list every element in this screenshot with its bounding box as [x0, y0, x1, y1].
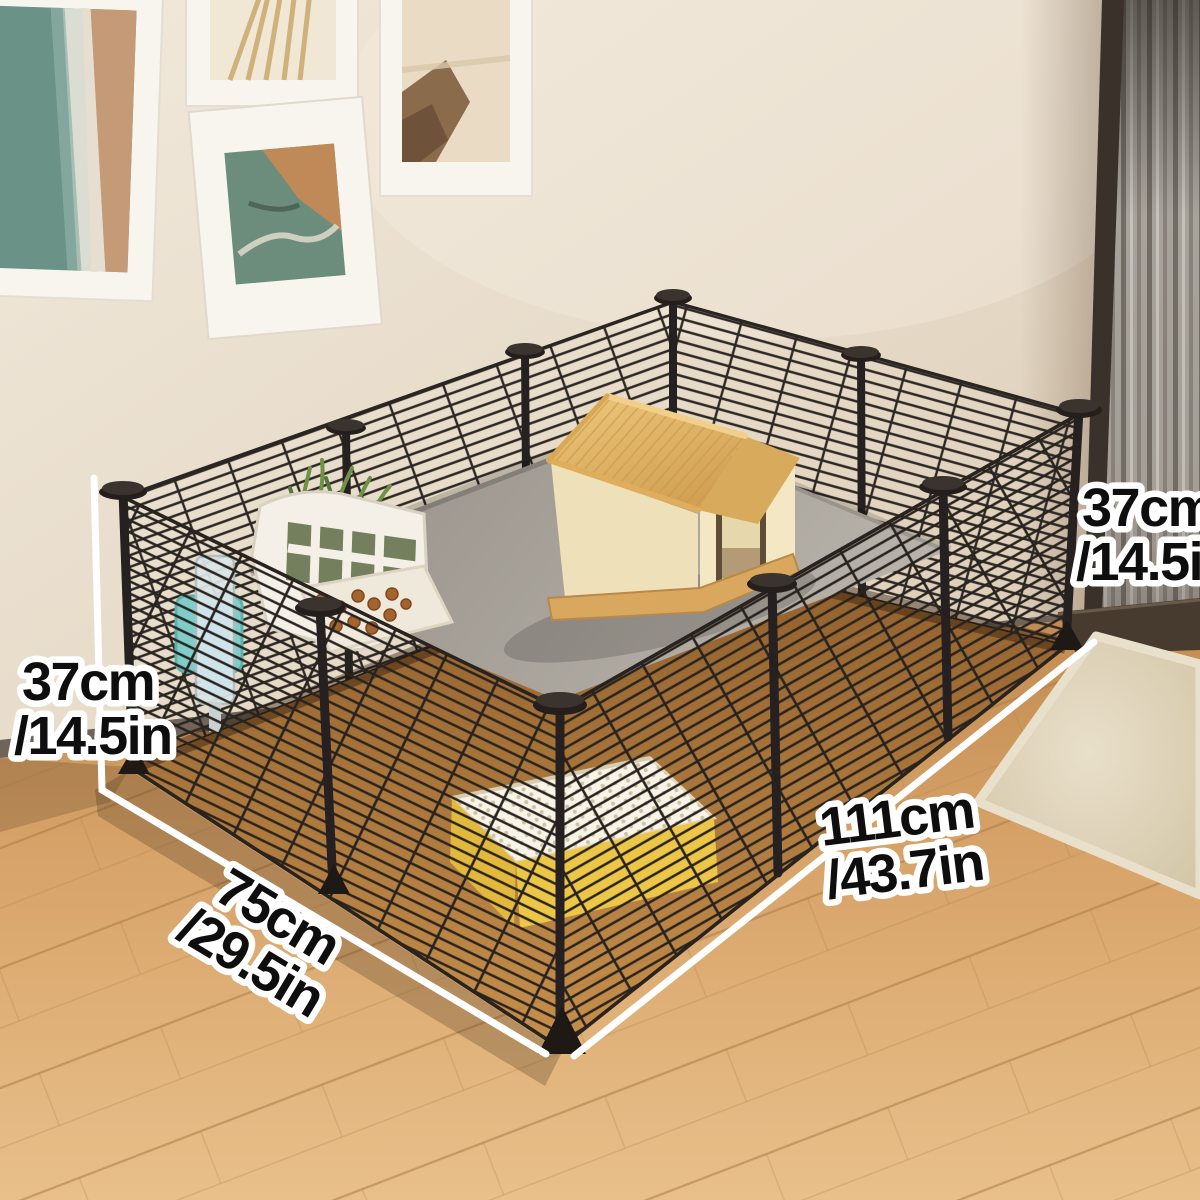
- dimension-label-right-height: 37cm /14.5in: [1076, 478, 1200, 592]
- scene-canvas: 37cm /14.5in 37cm /14.5in 75cm /29.5in 1…: [0, 0, 1200, 1200]
- dimension-label-left-height: 37cm /14.5in: [14, 652, 172, 766]
- picture-frame-abstract-coast: [189, 97, 382, 339]
- dimension-label-side-length: 111cm /43.7in: [816, 779, 986, 910]
- right-height-in: /14.5in: [1076, 532, 1200, 592]
- picture-frame-beach-rocks: [380, 0, 532, 196]
- pet-playpen-product-photo: 37cm /14.5in 37cm /14.5in 75cm /29.5in 1…: [0, 0, 1200, 1200]
- right-height-cm: 37cm: [1082, 478, 1200, 538]
- left-height-in: /14.5in: [14, 706, 172, 766]
- picture-frame-sea: [0, 0, 163, 301]
- left-height-cm: 37cm: [22, 652, 154, 712]
- picture-frame-pampas: [186, 0, 358, 106]
